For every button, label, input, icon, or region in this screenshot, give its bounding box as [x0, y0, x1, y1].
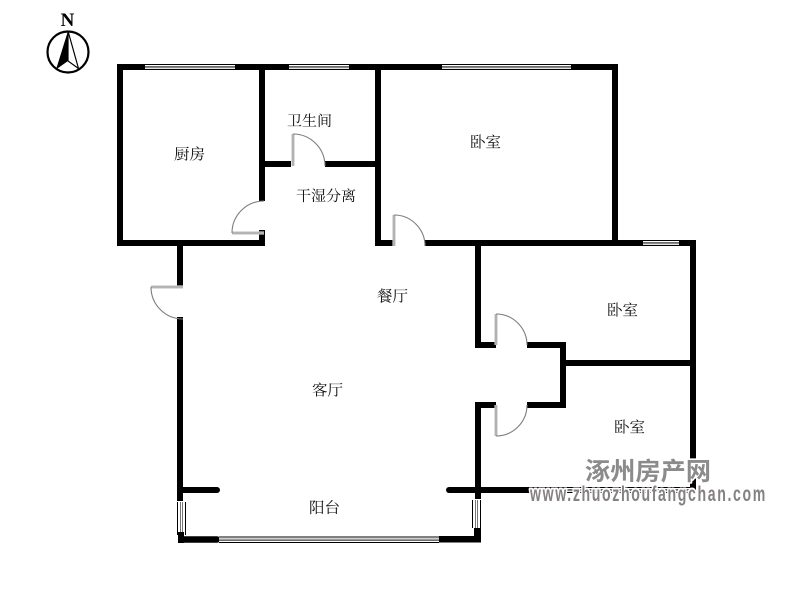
svg-text:www.zhuozhoufangchan.com: www.zhuozhoufangchan.com [529, 482, 767, 506]
